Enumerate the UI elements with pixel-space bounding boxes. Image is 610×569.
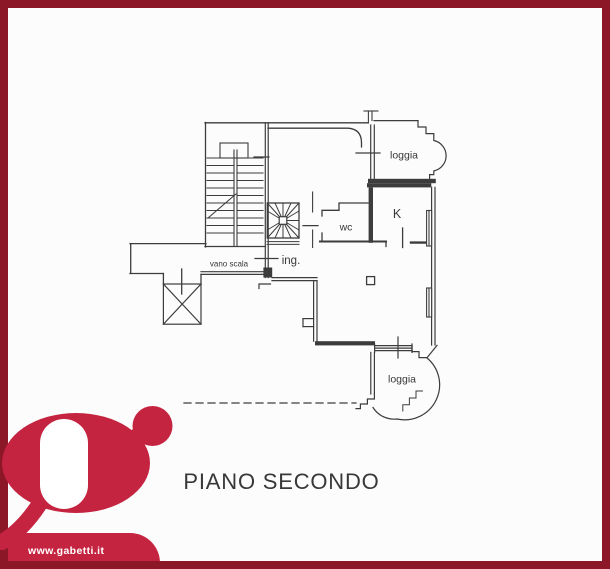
west-wall — [254, 123, 278, 278]
label-loggia-top: loggia — [390, 150, 418, 162]
windows — [427, 211, 432, 318]
top-room-walls — [268, 128, 362, 147]
staircase — [207, 143, 263, 246]
label-kitchen: K — [393, 207, 402, 221]
label-stairwell: vano scala — [210, 260, 249, 269]
living-room — [315, 277, 375, 346]
spiral-staircase — [267, 203, 299, 244]
floor-plan-page: loggia K wc ing. vano scala loggia PIANO… — [0, 0, 610, 569]
label-loggia-bottom: loggia — [388, 374, 416, 386]
entrance-walls — [201, 268, 317, 342]
gabetti-g-logo-icon — [0, 385, 180, 550]
left-wing — [130, 244, 206, 294]
label-wc: wc — [339, 222, 353, 234]
label-entrance: ing. — [282, 255, 301, 267]
plan-title: PIANO SECONDO — [183, 469, 379, 494]
